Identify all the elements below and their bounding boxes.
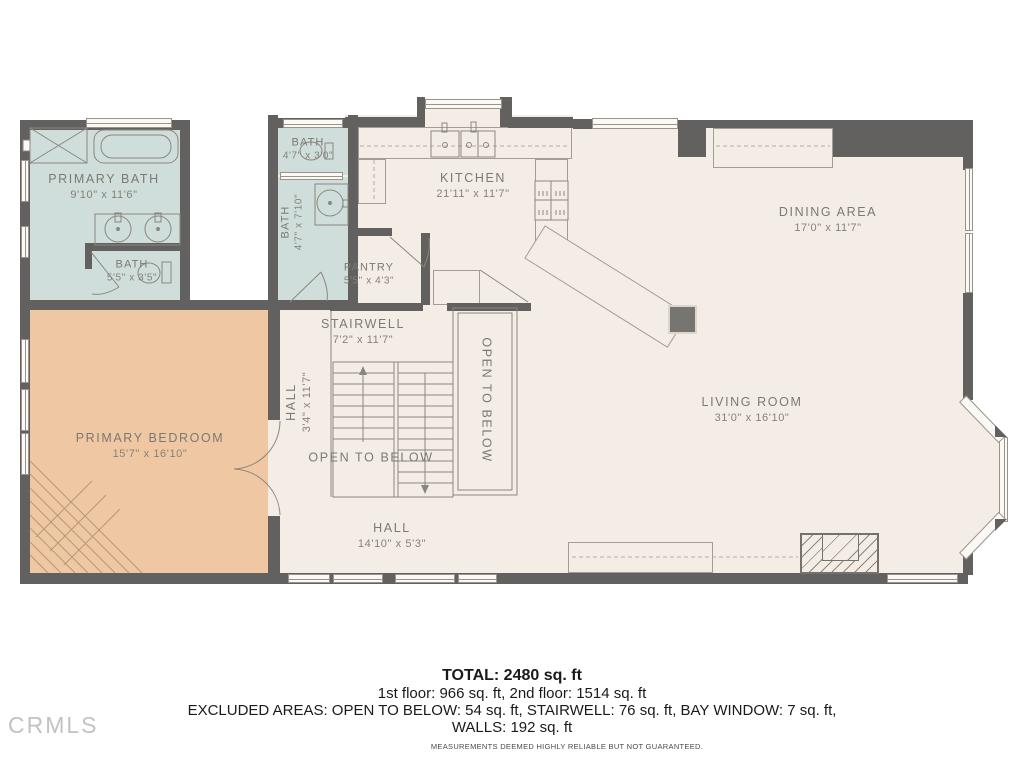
floor-plan: PRIMARY BATH 9'10" x 11'6" BATH 5'5" x 3… (0, 0, 1024, 768)
room-name: LIVING ROOM (702, 394, 803, 411)
window (21, 339, 29, 383)
window (425, 99, 502, 109)
window (395, 574, 455, 583)
window (592, 118, 678, 129)
wall-segment (180, 120, 190, 307)
wall-segment (706, 120, 973, 128)
room-label-dining: DINING AREA 17'0" x 11'7" (779, 204, 877, 236)
window (333, 574, 383, 583)
room-label-kitchen: KITCHEN 21'11" x 11'7" (436, 170, 509, 202)
window (86, 118, 172, 128)
room-label-stairwell: STAIRWELL 7'2" x 11'7" (321, 316, 405, 348)
window (288, 574, 330, 583)
pocket-door (280, 172, 343, 180)
bedroom-door-gap (268, 420, 281, 516)
room-label-pantry: PANTRY 5'5" x 4'3" (344, 261, 394, 288)
wall-segment (85, 251, 92, 269)
wall-segment (573, 119, 592, 129)
room-label-living: LIVING ROOM 31'0" x 16'10" (702, 394, 803, 426)
label-open-to-below-left: OPEN TO BELOW (308, 450, 433, 467)
wall-segment (268, 115, 278, 310)
disclaimer: MEASUREMENTS DEEMED HIGHLY RELIABLE BUT … (431, 742, 703, 751)
wall-segment (345, 117, 425, 127)
excluded-areas-line1: EXCLUDED AREAS: OPEN TO BELOW: 54 sq. ft… (0, 702, 1024, 719)
room-dims: 21'11" x 11'7" (436, 187, 509, 202)
room-name: BATH (107, 258, 157, 272)
window (458, 574, 497, 583)
living-cabinet (568, 542, 713, 573)
room-name: PRIMARY BATH (48, 171, 160, 188)
wall-segment (268, 516, 280, 575)
room-label-hall-lower: HALL 14'10" x 5'3" (358, 520, 426, 552)
window (21, 433, 29, 475)
room-dims: 17'0" x 11'7" (779, 221, 877, 236)
kitchen-counter-left (358, 159, 386, 204)
wall-segment (268, 310, 280, 420)
bay-window-center (999, 437, 1008, 522)
wall-segment (678, 120, 706, 157)
window (965, 168, 973, 231)
window (21, 226, 29, 258)
room-name: OPEN TO BELOW (478, 337, 495, 462)
room-dims: 4'7" x 7'10" (293, 194, 306, 250)
room-label-hall-upper: HALL 3'4" x 11'7" (283, 372, 315, 433)
room-dims: 4'7" x 3'0" (283, 150, 333, 163)
room-name: OPEN TO BELOW (308, 450, 433, 467)
kitchen-counter-top (358, 127, 572, 159)
wall-segment (963, 551, 973, 575)
room-name: DINING AREA (779, 204, 877, 221)
understair-closet (433, 270, 480, 305)
kitchen-counter-right (535, 159, 568, 243)
dining-cabinet (713, 128, 833, 168)
chimney-column (668, 305, 697, 334)
window (887, 574, 958, 583)
room-dims: 15'7" x 16'10" (76, 447, 225, 462)
room-label-bath-small: BATH 5'5" x 3'5" (107, 258, 157, 285)
room-label-bath-upper: BATH 4'7" x 3'0" (283, 136, 333, 163)
bay-window-floor (963, 398, 1004, 558)
wall-segment (20, 300, 358, 310)
room-name: HALL (283, 372, 300, 433)
fireplace-firebox (822, 534, 859, 561)
window (21, 160, 29, 202)
wall-segment (833, 128, 973, 157)
window (965, 233, 973, 293)
room-dims: 7'2" x 11'7" (321, 333, 405, 348)
room-name: HALL (358, 520, 426, 537)
room-name: BATH (283, 136, 333, 150)
wall-segment (421, 233, 430, 305)
room-dims: 5'5" x 3'5" (107, 272, 157, 285)
wall-segment (85, 243, 188, 251)
room-dims: 31'0" x 16'10" (702, 411, 803, 426)
wall-segment (508, 117, 573, 128)
room-dims: 5'5" x 4'3" (344, 275, 394, 288)
area-summary: TOTAL: 2480 sq. ft 1st floor: 966 sq. ft… (0, 666, 1024, 736)
room-label-primary-bedroom: PRIMARY BEDROOM 15'7" x 16'10" (76, 430, 225, 462)
primary-bath-floor (28, 126, 182, 303)
wall-segment (417, 97, 425, 127)
room-dims: 9'10" x 11'6" (48, 188, 160, 203)
excluded-areas-line2: WALLS: 192 sq. ft (0, 719, 1024, 736)
wall-segment (330, 303, 423, 311)
room-name: KITCHEN (436, 170, 509, 187)
wall-segment (358, 228, 392, 236)
window (283, 119, 343, 128)
room-label-primary-bath: PRIMARY BATH 9'10" x 11'6" (48, 171, 160, 203)
total-area: TOTAL: 2480 sq. ft (0, 666, 1024, 685)
crmls-watermark: CRMLS (8, 712, 99, 739)
floor-areas: 1st floor: 966 sq. ft, 2nd floor: 1514 s… (0, 685, 1024, 702)
room-label-bath-mid: BATH 4'7" x 7'10" (279, 194, 306, 250)
room-name: BATH (279, 194, 293, 250)
label-open-to-below-right: OPEN TO BELOW (478, 337, 495, 462)
room-name: PRIMARY BEDROOM (76, 430, 225, 447)
wall-segment (447, 303, 531, 311)
room-name: PANTRY (344, 261, 394, 275)
wall-segment (963, 293, 973, 400)
room-dims: 14'10" x 5'3" (358, 537, 426, 552)
room-name: STAIRWELL (321, 316, 405, 333)
room-dims: 3'4" x 11'7" (300, 372, 315, 433)
window (21, 389, 29, 431)
